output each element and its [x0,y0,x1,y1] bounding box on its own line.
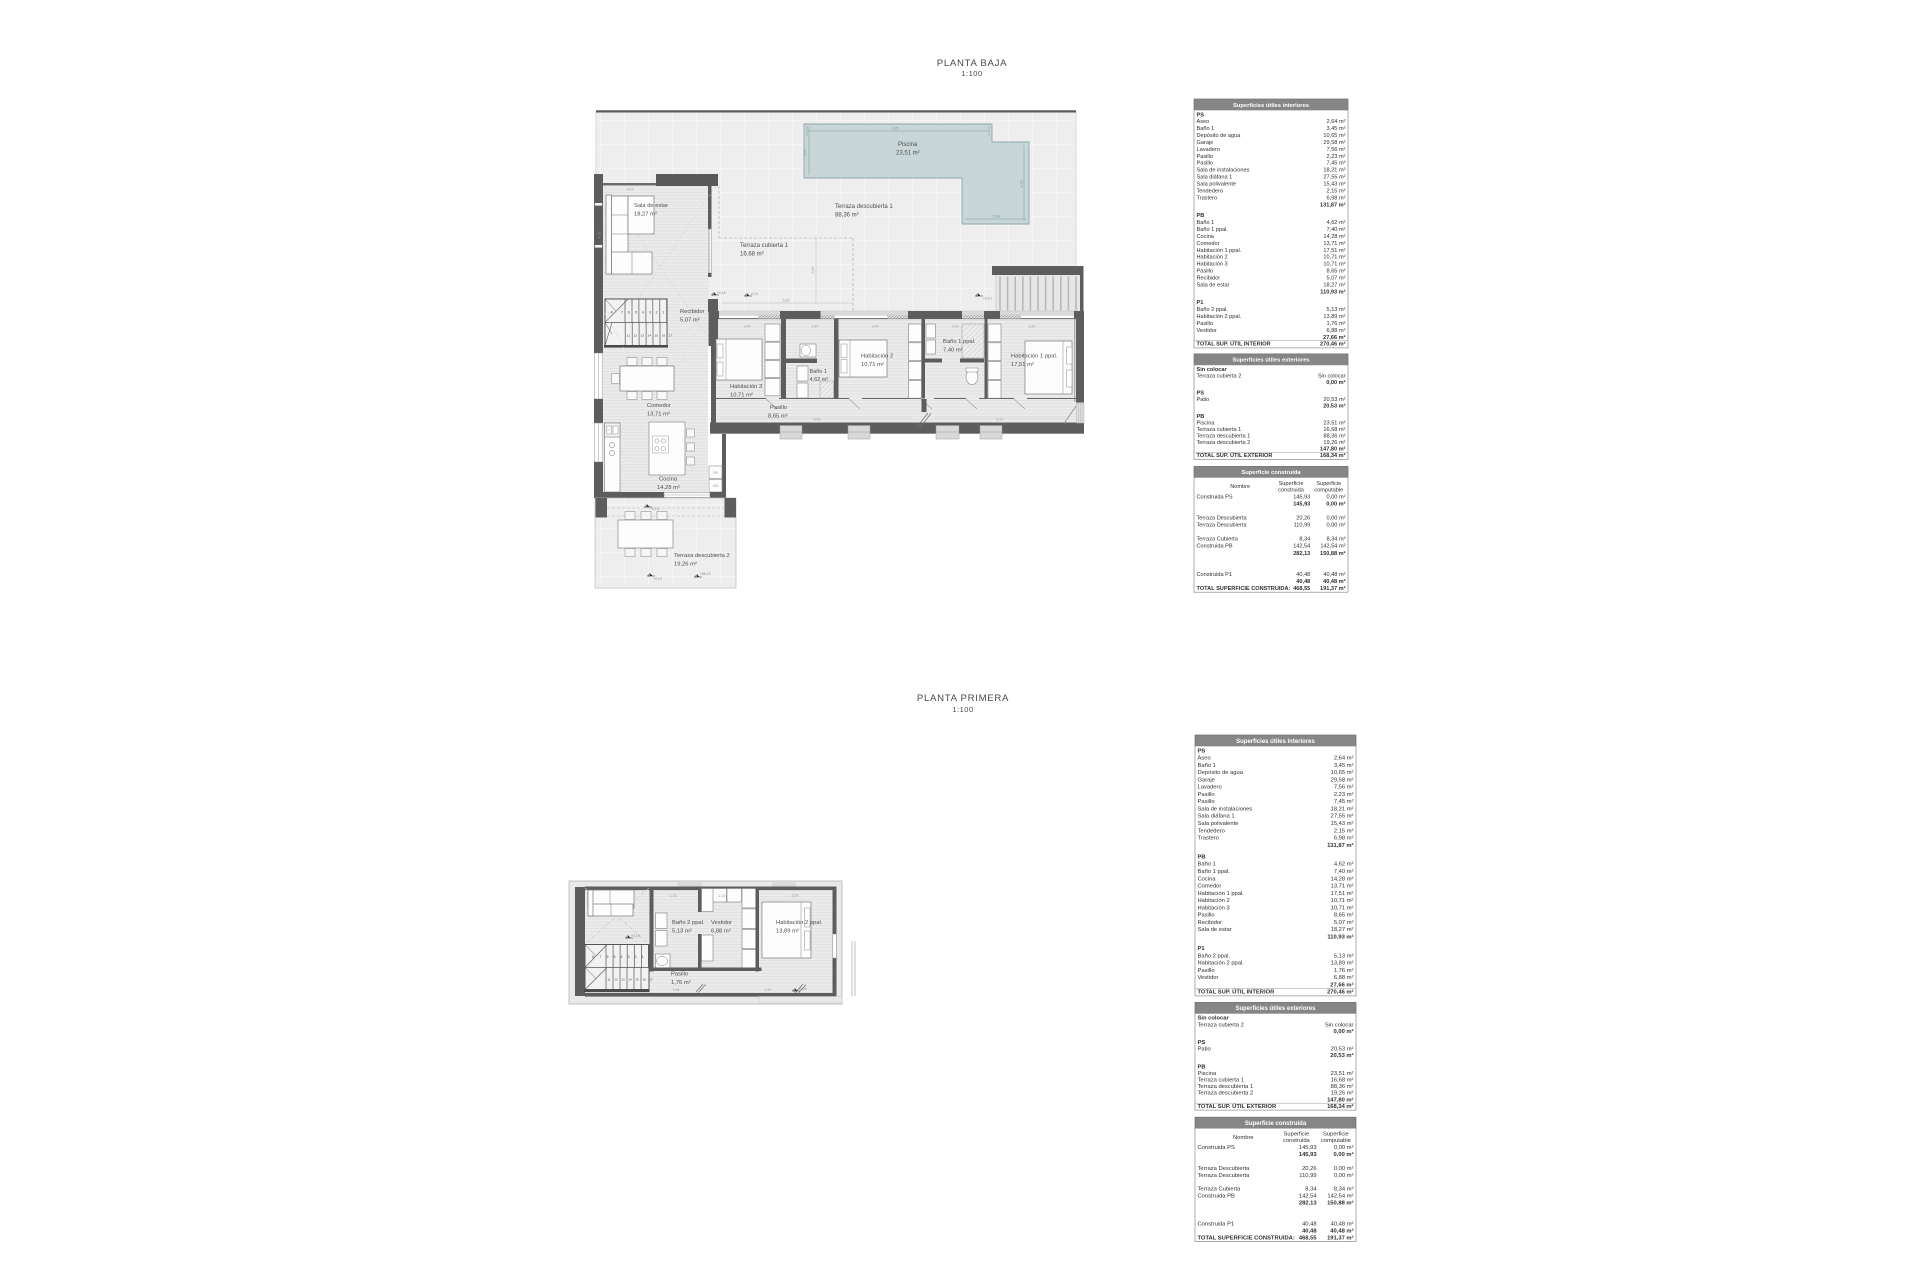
svg-text:13,71 m²: 13,71 m² [1331,884,1354,890]
svg-text:TOTAL SUPERFICIE CONSTRUIDA:: TOTAL SUPERFICIE CONSTRUIDA: [1197,586,1291,592]
svg-text:Habitación 1 ppal.: Habitación 1 ppal. [1197,248,1242,254]
svg-text:computable: computable [1314,487,1343,493]
svg-text:7,56 m²: 7,56 m² [1327,147,1346,153]
svg-text:142,54: 142,54 [1299,1194,1318,1200]
svg-text:16,68 m²: 16,68 m² [740,252,764,258]
svg-text:computable: computable [1321,1138,1351,1144]
svg-text:Terraza Cubierta: Terraza Cubierta [1198,1187,1242,1193]
svg-text:Construida PS: Construida PS [1197,494,1233,500]
svg-text:1,76 m²: 1,76 m² [1327,321,1346,327]
svg-text:2,15: 2,15 [719,894,726,898]
svg-text:7,45 m²: 7,45 m² [1334,799,1354,805]
svg-text:Construida PB: Construida PB [1197,544,1233,550]
svg-text:6: 6 [607,955,609,959]
svg-text:5,13 m²: 5,13 m² [1327,307,1346,313]
svg-text:Comedor: Comedor [647,403,671,409]
svg-text:PS: PS [1197,112,1205,118]
svg-text:Habitación 2 ppal.: Habitación 2 ppal. [1197,314,1242,320]
svg-text:5,56: 5,56 [783,299,790,303]
svg-text:18,27 m²: 18,27 m² [1323,282,1345,288]
svg-text:Construida PS: Construida PS [1198,1145,1236,1151]
svg-text:6: 6 [628,311,630,315]
svg-text:18,27 m²: 18,27 m² [634,212,657,218]
svg-text:Terraza Descubierta: Terraza Descubierta [1197,523,1248,529]
svg-text:0,00 m²: 0,00 m² [1327,523,1346,529]
svg-text:PLANTA BAJA: PLANTA BAJA [937,58,1007,69]
svg-text:Terraza cubierta 1: Terraza cubierta 1 [740,243,789,249]
svg-text:Habitación 3: Habitación 3 [1198,905,1230,911]
svg-text:282,13: 282,13 [1299,1201,1318,1207]
svg-text:Sala de instalaciones: Sala de instalaciones [1197,168,1250,174]
svg-text:191,37 m²: 191,37 m² [1327,1234,1353,1241]
svg-text:6,98 m²: 6,98 m² [1327,195,1346,201]
svg-text:145,93: 145,93 [1299,1152,1318,1158]
svg-text:P1: P1 [1197,300,1204,306]
svg-text:13: 13 [621,978,625,982]
svg-text:13,89 m²: 13,89 m² [776,929,799,935]
svg-text:40,48 m²: 40,48 m² [1323,572,1345,578]
svg-text:Terraza Descubierta: Terraza Descubierta [1198,1173,1251,1179]
svg-text:14: 14 [628,978,632,982]
svg-text:20,53 m²: 20,53 m² [1323,403,1346,410]
svg-text:29,58 m²: 29,58 m² [1331,777,1354,783]
svg-text:Baño 1 ppal.: Baño 1 ppal. [1197,227,1229,233]
svg-text:4,62 m²: 4,62 m² [1334,862,1354,868]
svg-text:4,62 m²: 4,62 m² [1327,220,1346,226]
svg-text:PB: PB [1198,855,1206,861]
svg-text:6,88 m²: 6,88 m² [711,929,731,935]
svg-text:468,55: 468,55 [1293,586,1310,592]
svg-text:3,45 m²: 3,45 m² [1327,126,1346,132]
svg-text:7,40 m²: 7,40 m² [943,348,963,354]
svg-text:10,71 m²: 10,71 m² [730,393,753,399]
svg-text:Nombre: Nombre [1230,484,1250,490]
svg-text:+56,13: +56,13 [700,572,711,576]
svg-text:0,00 m²: 0,00 m² [1334,1028,1354,1035]
svg-text:2,15 m²: 2,15 m² [1327,188,1346,194]
svg-text:145,93: 145,93 [1293,501,1310,507]
svg-text:145,93: 145,93 [1293,494,1310,500]
svg-text:10,71 m²: 10,71 m² [1323,255,1345,261]
svg-text:Habitación 2: Habitación 2 [861,354,893,360]
svg-text:13,71 m²: 13,71 m² [1323,241,1345,247]
svg-text:Pasillo: Pasillo [770,405,787,411]
svg-text:Comedor: Comedor [1198,884,1222,890]
svg-text:Baño 2 ppal.: Baño 2 ppal. [1198,953,1231,959]
svg-text:6,98 m²: 6,98 m² [1334,836,1354,842]
svg-text:131,87 m²: 131,87 m² [1320,201,1346,208]
svg-text:CO: CO [713,484,718,488]
svg-text:88,36 m²: 88,36 m² [1331,1084,1354,1090]
svg-text:Terraza Descubierta: Terraza Descubierta [1198,1166,1251,1172]
svg-text:0,00 m²: 0,00 m² [1334,1173,1354,1179]
svg-text:Pasillo: Pasillo [1198,792,1215,798]
svg-text:19,26 m²: 19,26 m² [1331,1091,1354,1097]
svg-text:Superficie: Superficie [1279,481,1304,487]
svg-text:2,47: 2,47 [765,988,772,992]
svg-text:5: 5 [635,311,637,315]
svg-text:17,51 m²: 17,51 m² [1323,248,1345,254]
svg-text:Sala de estar: Sala de estar [1197,282,1230,288]
svg-text:FN: FN [713,471,718,475]
svg-text:2,87: 2,87 [803,148,807,155]
svg-text:Pasillo: Pasillo [1198,968,1215,974]
svg-text:Habitación 2: Habitación 2 [1198,898,1230,904]
svg-text:1:100: 1:100 [961,69,982,78]
svg-text:15: 15 [655,334,659,338]
svg-text:3,30: 3,30 [1020,180,1024,187]
svg-text:14,28 m²: 14,28 m² [1331,876,1354,882]
svg-text:Sala de instalaciones: Sala de instalaciones [1198,807,1253,813]
svg-text:Piscina: Piscina [1198,1071,1217,1077]
svg-text:10,71 m²: 10,71 m² [1331,898,1354,904]
svg-text:TOTAL SUP. ÚTIL INTERIOR: TOTAL SUP. ÚTIL INTERIOR [1197,341,1271,348]
svg-text:Piscina: Piscina [1197,421,1216,427]
svg-text:Terraza descubierta 1: Terraza descubierta 1 [1197,434,1251,440]
svg-text:Baño 1: Baño 1 [1197,220,1215,226]
svg-text:1,76 m²: 1,76 m² [1334,968,1354,974]
svg-text:0,00 m²: 0,00 m² [1334,1151,1354,1158]
svg-text:Nombre: Nombre [1233,1135,1254,1141]
svg-text:2: 2 [635,955,637,959]
svg-text:Pasillo: Pasillo [1198,913,1215,919]
svg-text:construida: construida [1278,487,1305,493]
svg-text:Terraza descubierta 2: Terraza descubierta 2 [1198,1091,1254,1097]
svg-text:Terraza Descubierta: Terraza Descubierta [1197,516,1248,522]
svg-text:23,51 m²: 23,51 m² [896,151,920,157]
svg-text:0,00 m²: 0,00 m² [1327,494,1346,500]
svg-text:PS: PS [1197,391,1205,397]
svg-text:14: 14 [648,334,652,338]
svg-text:Terraza cubierta 2: Terraza cubierta 2 [1198,1022,1244,1028]
svg-text:Pasillo: Pasillo [671,972,688,978]
svg-text:7,40 m²: 7,40 m² [1334,869,1354,875]
svg-text:Sala polivalente: Sala polivalente [1198,821,1239,827]
svg-text:Construida P1: Construida P1 [1198,1222,1235,1228]
svg-text:468,55: 468,55 [1299,1235,1318,1241]
svg-text:40,48 m²: 40,48 m² [1323,578,1346,585]
svg-text:Superficie: Superficie [1323,1132,1349,1138]
svg-text:23,51 m²: 23,51 m² [1323,421,1345,427]
svg-text:168,34 m²: 168,34 m² [1327,1103,1353,1110]
svg-text:110,93 m²: 110,93 m² [1327,933,1353,940]
svg-text:P1: P1 [1198,946,1206,952]
svg-text:Pasillo: Pasillo [1197,154,1213,160]
svg-text:Superficie: Superficie [1284,1132,1310,1138]
svg-text:8,65 m²: 8,65 m² [1334,913,1354,919]
svg-text:150,88 m²: 150,88 m² [1320,550,1346,557]
svg-text:Garaje: Garaje [1197,140,1214,146]
svg-text:145,93: 145,93 [1299,1145,1317,1151]
svg-text:8,34 m²: 8,34 m² [1327,537,1346,543]
svg-text:Baño 1 ppal.: Baño 1 ppal. [943,339,976,345]
svg-text:7: 7 [621,311,623,315]
svg-text:Terraza descubierta 1: Terraza descubierta 1 [1198,1084,1254,1090]
svg-text:Lavadero: Lavadero [1198,785,1222,791]
svg-text:8,65 m²: 8,65 m² [768,414,788,420]
svg-text:8,34: 8,34 [1305,1187,1317,1193]
svg-text:8,65 m²: 8,65 m² [1327,269,1346,275]
svg-text:Habitación 3: Habitación 3 [730,384,762,390]
svg-text:Terraza cubierta 2: Terraza cubierta 2 [1197,374,1242,380]
svg-text:23,51 m²: 23,51 m² [1331,1071,1354,1077]
svg-text:Trastero: Trastero [1198,836,1219,842]
svg-text:10,71 m²: 10,71 m² [861,362,884,368]
svg-text:8,34: 8,34 [1299,537,1310,543]
svg-text:Superficies útiles interiores: Superficies útiles interiores [1233,103,1309,109]
svg-text:Pasillo: Pasillo [1198,799,1215,805]
svg-text:Aseo: Aseo [1198,756,1211,762]
svg-text:20,26: 20,26 [1296,516,1310,522]
svg-text:27,55 m²: 27,55 m² [1323,175,1345,181]
svg-text:Sala diáfana 1: Sala diáfana 1 [1197,175,1233,181]
svg-text:Habitación 1 ppal.: Habitación 1 ppal. [1011,354,1058,360]
svg-text:3,26: 3,26 [792,894,799,898]
svg-text:40,48 m²: 40,48 m² [1330,1227,1353,1234]
svg-text:1: 1 [662,311,664,315]
svg-text:1,47: 1,47 [812,325,819,329]
svg-text:Vestidor: Vestidor [1197,328,1217,334]
svg-text:20,53 m²: 20,53 m² [1323,397,1345,403]
svg-text:1:100: 1:100 [952,705,973,714]
svg-text:4,07: 4,07 [627,188,634,192]
svg-text:27,55 m²: 27,55 m² [1331,814,1354,820]
svg-text:17: 17 [669,334,673,338]
svg-text:8: 8 [611,311,613,315]
svg-text:Cocina: Cocina [1198,876,1217,882]
svg-text:10,71 m²: 10,71 m² [1331,905,1354,911]
svg-text:7,45 m²: 7,45 m² [1327,161,1346,167]
svg-text:TOTAL SUP. ÚTIL EXTERIOR: TOTAL SUP. ÚTIL EXTERIOR [1198,1103,1278,1110]
svg-text:Terraza Cubierta: Terraza Cubierta [1197,537,1239,543]
svg-text:29,58 m²: 29,58 m² [1323,140,1345,146]
svg-text:Terraza descubierta 1: Terraza descubierta 1 [835,204,893,210]
svg-text:14,28 m²: 14,28 m² [1323,234,1345,240]
svg-text:Recibidor: Recibidor [1198,920,1223,926]
svg-text:TOTAL SUP. ÚTIL INTERIOR: TOTAL SUP. ÚTIL INTERIOR [1198,989,1276,996]
svg-text:110,99: 110,99 [1294,523,1311,529]
svg-text:2,15 m²: 2,15 m² [1334,828,1354,834]
svg-text:Baño 2 ppal.: Baño 2 ppal. [672,920,705,926]
svg-text:Tendedero: Tendedero [1198,828,1225,834]
svg-text:13,89 m²: 13,89 m² [1331,961,1354,967]
svg-text:Comedor: Comedor [1197,241,1220,247]
svg-text:+0,15: +0,15 [631,934,640,938]
svg-text:Sin colocar: Sin colocar [1198,1016,1230,1022]
svg-text:Depósito de agua: Depósito de agua [1198,770,1244,776]
svg-text:40,48 m²: 40,48 m² [1331,1222,1354,1228]
svg-text:10,65 m²: 10,65 m² [1331,770,1354,776]
svg-text:TOTAL SUPERFICIE CONSTRUIDA:: TOTAL SUPERFICIE CONSTRUIDA: [1198,1235,1295,1241]
svg-text:142,54 m²: 142,54 m² [1327,1194,1353,1200]
svg-text:17,51 m²: 17,51 m² [1331,891,1354,897]
svg-text:Superficie construida: Superficie construida [1241,470,1301,476]
svg-text:Sin colocar: Sin colocar [1197,367,1228,373]
svg-text:1,78: 1,78 [670,894,677,898]
svg-text:Recibidor: Recibidor [1197,276,1221,282]
svg-text:5,13 m²: 5,13 m² [1334,953,1354,959]
svg-text:15: 15 [635,978,639,982]
svg-text:10,71 m²: 10,71 m² [1323,262,1345,268]
svg-text:Habitación 2 ppal.: Habitación 2 ppal. [776,920,823,926]
svg-text:Sala polivalente: Sala polivalente [1197,182,1237,188]
svg-text:Garaje: Garaje [1198,777,1215,783]
svg-text:PS: PS [1198,1040,1206,1046]
svg-text:Construida PB: Construida PB [1198,1194,1236,1200]
svg-text:5,07 m²: 5,07 m² [680,318,700,324]
svg-text:12: 12 [614,978,618,982]
svg-text:construida: construida [1283,1138,1311,1144]
svg-text:2,64 m²: 2,64 m² [1334,756,1354,762]
svg-text:Depósito de agua: Depósito de agua [1197,133,1242,139]
svg-text:16: 16 [642,978,646,982]
svg-text:16,68 m²: 16,68 m² [1323,427,1345,433]
svg-text:Pasillo: Pasillo [1197,161,1213,167]
svg-text:88,36 m²: 88,36 m² [1323,434,1345,440]
svg-text:6,88 m²: 6,88 m² [1334,975,1354,981]
svg-text:+0,13: +0,13 [983,297,992,301]
svg-text:168,34 m²: 168,34 m² [1320,452,1346,459]
svg-text:18,21 m²: 18,21 m² [1331,807,1354,813]
svg-text:0,00 m²: 0,00 m² [1327,516,1346,522]
svg-text:20,26: 20,26 [1302,1166,1317,1172]
svg-text:+0,15: +0,15 [717,291,726,295]
svg-text:16,68 m²: 16,68 m² [1331,1078,1354,1084]
svg-text:Baño 1: Baño 1 [810,369,827,375]
svg-text:11: 11 [607,978,610,982]
svg-text:Recibidor: Recibidor [680,309,705,315]
svg-text:3,60: 3,60 [1029,325,1036,329]
svg-text:+3,05: +3,05 [798,987,807,991]
svg-text:Terraza cubierta 1: Terraza cubierta 1 [1198,1078,1244,1084]
svg-text:Cocina: Cocina [659,477,678,483]
svg-text:12: 12 [634,334,638,338]
svg-text:Lavadero: Lavadero [1197,147,1220,153]
svg-text:2: 2 [656,311,658,315]
svg-text:Superficies útiles interiores: Superficies útiles interiores [1236,739,1315,745]
svg-text:0,00 m²: 0,00 m² [1334,1145,1354,1151]
svg-text:7,40 m²: 7,40 m² [1327,227,1346,233]
svg-text:270,46 m²: 270,46 m² [1320,341,1346,348]
svg-text:Pasillo: Pasillo [1197,321,1213,327]
svg-text:16: 16 [662,334,666,338]
svg-text:Patio: Patio [1198,1047,1211,1053]
svg-text:19,26 m²: 19,26 m² [674,562,697,568]
svg-text:7: 7 [600,955,602,959]
svg-text:3: 3 [628,955,630,959]
svg-text:110,99: 110,99 [1299,1173,1316,1179]
svg-text:Baño 1: Baño 1 [1198,763,1216,769]
svg-text:11: 11 [627,334,630,338]
svg-text:14,28 m²: 14,28 m² [657,485,680,491]
svg-text:PB: PB [1198,1064,1206,1070]
svg-text:TOTAL SUP. ÚTIL EXTERIOR: TOTAL SUP. ÚTIL EXTERIOR [1197,452,1273,459]
svg-text:Baño 2 ppal.: Baño 2 ppal. [1197,307,1229,313]
svg-text:5: 5 [614,955,616,959]
svg-text:40,48: 40,48 [1296,579,1310,585]
svg-text:1: 1 [642,955,644,959]
svg-text:PB: PB [1197,414,1205,420]
svg-text:1,94: 1,94 [673,988,680,992]
svg-text:19,26 m²: 19,26 m² [1323,440,1345,446]
svg-text:147,80 m²: 147,80 m² [1320,446,1346,453]
svg-text:Aseo: Aseo [1197,119,1210,125]
svg-text:Superficies útiles exteriores: Superficies útiles exteriores [1232,358,1309,364]
svg-text:7,85: 7,85 [891,127,898,131]
svg-text:40,48: 40,48 [1302,1228,1317,1234]
svg-text:0,00 m²: 0,00 m² [1326,500,1345,507]
svg-text:4: 4 [642,311,644,315]
svg-text:Baño 1: Baño 1 [1197,126,1215,132]
svg-text:2,64 m²: 2,64 m² [1327,119,1346,125]
svg-text:Construida P1: Construida P1 [1197,572,1232,578]
svg-text:Baño 1: Baño 1 [1198,862,1216,868]
svg-text:Sin colocar: Sin colocar [1325,1022,1354,1028]
svg-text:1,76 m²: 1,76 m² [671,980,691,986]
svg-text:10,65 m²: 10,65 m² [1323,133,1345,139]
svg-text:Trastero: Trastero [1197,195,1218,201]
svg-text:13,71 m²: 13,71 m² [647,412,670,418]
svg-text:27,66 m²: 27,66 m² [1330,982,1353,989]
svg-text:Vestidor: Vestidor [711,920,732,926]
svg-text:0,00 m²: 0,00 m² [1326,379,1345,386]
svg-text:191,37 m²: 191,37 m² [1320,585,1346,592]
svg-text:Habitación 3: Habitación 3 [1197,262,1228,268]
svg-text:142,54 m²: 142,54 m² [1320,544,1345,550]
svg-text:147,80 m²: 147,80 m² [1327,1096,1353,1103]
svg-text:3: 3 [649,311,651,315]
svg-text:282,13: 282,13 [1293,551,1310,557]
svg-text:17: 17 [649,978,653,982]
svg-text:2,43: 2,43 [952,325,959,329]
svg-text:Habitación 2 ppal.: Habitación 2 ppal. [1198,961,1245,967]
svg-text:17,51 m²: 17,51 m² [1011,362,1034,368]
svg-text:150,88 m²: 150,88 m² [1327,1200,1353,1207]
svg-text:Terraza cubierta 1: Terraza cubierta 1 [1197,427,1242,433]
svg-text:Terraza descubierta 2: Terraza descubierta 2 [1197,440,1251,446]
svg-text:142,54: 142,54 [1293,544,1310,550]
svg-text:Tendedero: Tendedero [1197,188,1223,194]
svg-text:Superficies útiles exteriores: Superficies útiles exteriores [1235,1006,1316,1012]
svg-text:Patio: Patio [1197,397,1210,403]
svg-text:7,56 m²: 7,56 m² [1334,785,1354,791]
svg-text:Baño 1 ppal.: Baño 1 ppal. [1198,869,1231,875]
svg-text:3,45: 3,45 [744,325,751,329]
svg-text:18,21 m²: 18,21 m² [1323,168,1345,174]
svg-text:27,66 m²: 27,66 m² [1323,334,1346,341]
svg-text:PB: PB [1197,213,1205,219]
svg-text:Vestidor: Vestidor [1198,975,1219,981]
svg-text:18,27 m²: 18,27 m² [1331,927,1354,933]
svg-text:Superficie: Superficie [1316,481,1341,487]
svg-text:5,13 m²: 5,13 m² [672,929,692,935]
svg-text:0,00 m²: 0,00 m² [1334,1166,1354,1172]
svg-text:40,48: 40,48 [1296,572,1310,578]
svg-text:5,07 m²: 5,07 m² [1334,920,1354,926]
svg-text:PS: PS [1198,748,1206,754]
svg-text:Terraza descubierta 2: Terraza descubierta 2 [674,553,730,559]
svg-text:110,93 m²: 110,93 m² [1320,288,1345,295]
svg-text:2,23 m²: 2,23 m² [1334,792,1354,798]
svg-text:Superficie construida: Superficie construida [1245,1121,1307,1127]
svg-text:6,88 m²: 6,88 m² [1327,328,1346,334]
svg-text:13,89 m²: 13,89 m² [1323,314,1345,320]
svg-text:131,87 m²: 131,87 m² [1327,842,1353,849]
svg-text:20,53 m²: 20,53 m² [1330,1052,1353,1059]
svg-text:Cocina: Cocina [1197,234,1215,240]
svg-text:PLANTA PRIMERA: PLANTA PRIMERA [917,693,1009,704]
svg-text:Sala de estar: Sala de estar [1198,927,1232,933]
